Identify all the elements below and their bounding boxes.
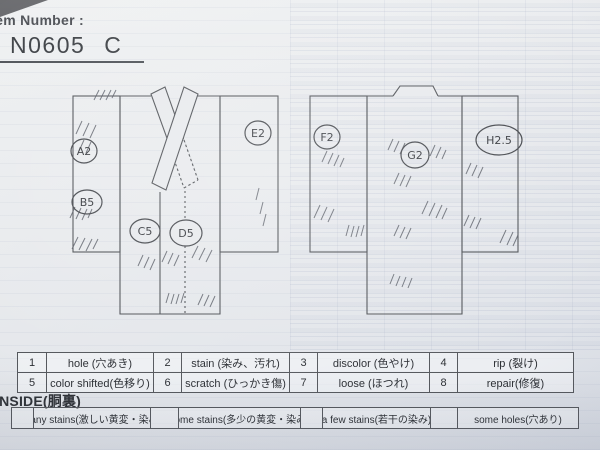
defect-mark-a2: A2 bbox=[71, 139, 97, 163]
scratch-mark-group bbox=[162, 251, 179, 266]
legend-code: 3 bbox=[290, 353, 318, 373]
scratch-mark-group bbox=[394, 225, 411, 239]
inside-checkbox-cell bbox=[12, 408, 34, 429]
inside-checkbox-cell bbox=[431, 408, 458, 429]
scratch-mark-group bbox=[394, 173, 411, 187]
inside-option-label: some stains(多少の黄変・染み) bbox=[179, 408, 301, 429]
scratch-mark-group bbox=[314, 205, 334, 222]
defect-mark-f2: F2 bbox=[314, 125, 340, 149]
defect-code-label: C5 bbox=[138, 225, 153, 238]
defect-code-label: F2 bbox=[320, 131, 333, 144]
scratch-mark-group bbox=[422, 201, 447, 219]
inside-option-label: some holes(穴あり) bbox=[458, 408, 579, 429]
scratch-mark-group bbox=[430, 145, 446, 159]
defect-mark-d5: D5 bbox=[170, 220, 202, 246]
scratch-mark-group bbox=[138, 255, 155, 270]
inspection-sheet-photo: Item Number : N0605 C bbox=[0, 0, 600, 450]
legend-code: 6 bbox=[154, 373, 182, 393]
legend-label: loose (ほつれ) bbox=[318, 373, 430, 393]
defect-code-label: H2.5 bbox=[486, 134, 512, 147]
scratch-mark-group bbox=[72, 237, 98, 251]
inside-checkbox-cell bbox=[301, 408, 323, 429]
scratch-mark-group bbox=[256, 188, 266, 226]
legend-code: 5 bbox=[18, 373, 47, 393]
back-body-outline bbox=[367, 96, 462, 314]
defect-mark-b5: B5 bbox=[72, 190, 102, 214]
legend-code: 8 bbox=[430, 373, 458, 393]
scratch-mark-group bbox=[94, 90, 116, 100]
legend-label: hole (穴あき) bbox=[47, 353, 154, 373]
scratch-mark-group bbox=[166, 293, 184, 304]
front-left-sleeve bbox=[73, 96, 120, 252]
back-defect-circles: F2 G2 H2.5 bbox=[314, 125, 522, 168]
scratch-mark-group bbox=[390, 274, 412, 288]
back-collar bbox=[393, 86, 438, 96]
scratch-mark-group bbox=[322, 151, 344, 167]
legend-code: 1 bbox=[18, 353, 47, 373]
defect-mark-c5: C5 bbox=[130, 219, 160, 243]
defect-legend-table: 1 hole (穴あき) 2 stain (染み、汚れ) 3 discolor … bbox=[17, 352, 574, 393]
inside-option-label: many stains(激しい黄変・染み) bbox=[34, 408, 151, 429]
defect-code-label: B5 bbox=[80, 196, 95, 209]
defect-code-label: A2 bbox=[77, 145, 92, 158]
scratch-mark-group bbox=[388, 139, 405, 154]
front-right-sleeve bbox=[220, 96, 278, 252]
inside-options-table: many stains(激しい黄変・染み) some stains(多少の黄変・… bbox=[11, 407, 579, 429]
legend-label: color shifted(色移り) bbox=[47, 373, 154, 393]
scratch-mark-group bbox=[500, 230, 518, 246]
defect-code-label: D5 bbox=[178, 227, 193, 240]
legend-label: stain (染み、汚れ) bbox=[182, 353, 290, 373]
defect-mark-g2: G2 bbox=[401, 142, 429, 168]
legend-label: repair(修復) bbox=[458, 373, 574, 393]
legend-code: 7 bbox=[290, 373, 318, 393]
scratch-mark-group bbox=[466, 163, 483, 178]
scratch-mark-group bbox=[346, 225, 364, 237]
kimono-front-diagram bbox=[73, 87, 278, 314]
legend-label: rip (裂け) bbox=[458, 353, 574, 373]
scratch-mark-group bbox=[198, 294, 215, 307]
defect-mark-e2: E2 bbox=[245, 121, 271, 145]
legend-label: scratch (ひっかき傷) bbox=[182, 373, 290, 393]
defect-mark-h2-5: H2.5 bbox=[476, 125, 522, 155]
legend-label: discolor (色やけ) bbox=[318, 353, 430, 373]
legend-code: 4 bbox=[430, 353, 458, 373]
scratch-mark-group bbox=[464, 215, 481, 229]
defect-code-label: E2 bbox=[251, 127, 265, 140]
kimono-back-diagram bbox=[310, 86, 518, 314]
back-right-sleeve bbox=[462, 96, 518, 252]
legend-code: 2 bbox=[154, 353, 182, 373]
inside-option-label: a few stains(若干の染み) bbox=[323, 408, 431, 429]
defect-code-label: G2 bbox=[407, 149, 423, 162]
inside-checkbox-cell bbox=[151, 408, 179, 429]
scratch-mark-group bbox=[192, 246, 212, 262]
